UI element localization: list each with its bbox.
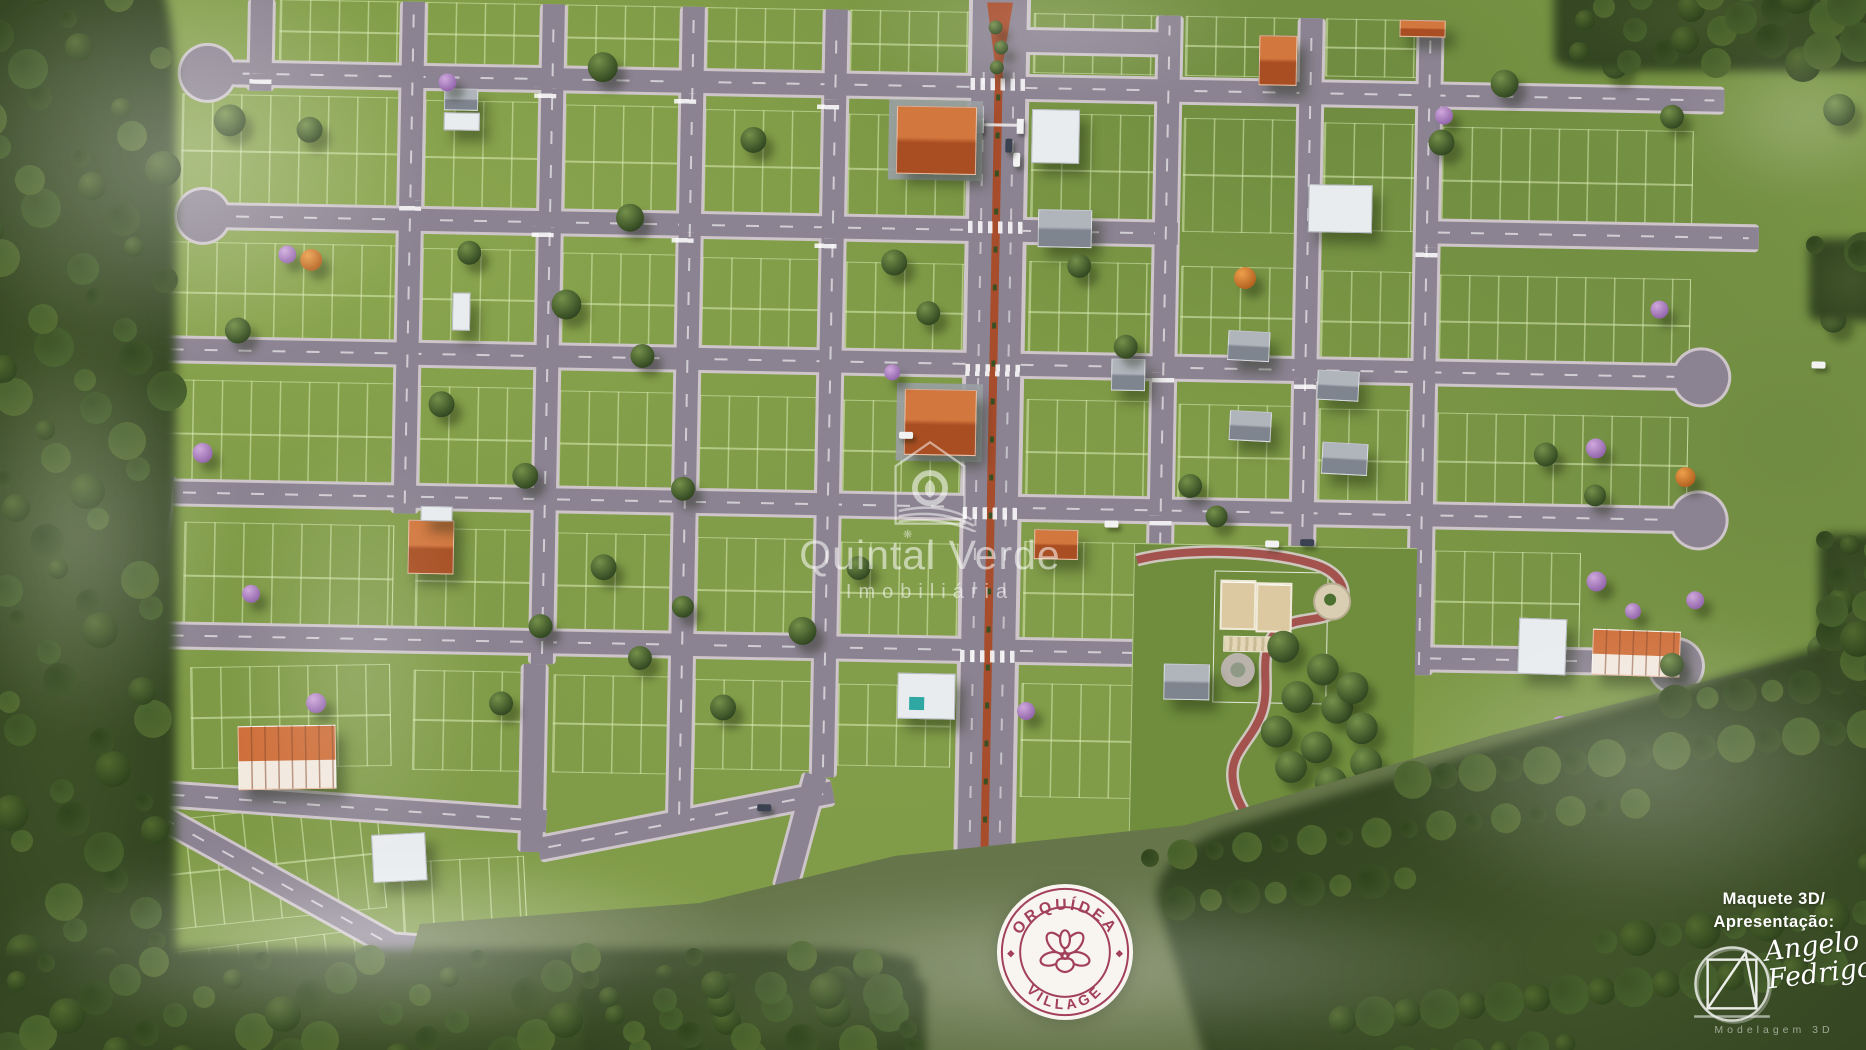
forest-canopy — [1671, 26, 1699, 54]
forest-canopy — [581, 971, 599, 989]
author-signature: Angelo Fedrigo — [1763, 926, 1866, 996]
forest-canopy — [133, 1020, 159, 1046]
credits-subtitle: Modelagem 3D — [1682, 1024, 1866, 1036]
forest-canopy — [4, 714, 36, 746]
forest-canopy — [415, 1026, 441, 1050]
forest-canopy — [117, 121, 147, 151]
forest — [1560, 0, 1866, 65]
forest-canopy — [37, 954, 55, 972]
forest-canopy — [677, 1022, 703, 1048]
forest-canopy — [128, 677, 156, 705]
forest-canopy — [1816, 531, 1834, 549]
forest-canopy — [163, 1003, 187, 1027]
forest-canopy — [121, 561, 159, 599]
forest-canopy — [785, 1024, 819, 1050]
forest — [1815, 245, 1866, 315]
forest-canopy — [85, 288, 103, 306]
forest-canopy — [1569, 42, 1589, 62]
badge-separator-right: ◆ — [1115, 948, 1124, 958]
forest-canopy — [134, 700, 172, 738]
forest-canopy — [30, 524, 64, 558]
forest-canopy — [78, 172, 106, 200]
forest-canopy — [87, 508, 109, 530]
forest-canopy — [653, 988, 677, 1012]
forest-canopy — [295, 979, 329, 1013]
forest-canopy — [7, 971, 27, 991]
forest-canopy — [1725, 2, 1757, 34]
forest-canopy — [1816, 595, 1848, 627]
forest-canopy — [84, 832, 124, 872]
forest-canopy — [80, 392, 112, 424]
forest-canopy — [35, 420, 55, 440]
forest-canopy — [113, 318, 137, 342]
forest-canopy — [141, 816, 169, 844]
forest-canopy — [139, 947, 169, 977]
forest-canopy — [135, 793, 153, 811]
forest-canopy — [905, 1038, 923, 1050]
forest-canopy — [325, 962, 357, 994]
forest-canopy — [701, 971, 729, 999]
forest-canopy — [599, 987, 619, 1007]
forest-canopy — [65, 33, 93, 61]
forest — [0, 0, 170, 1050]
forest-canopy — [95, 751, 131, 787]
forest-canopy — [9, 610, 27, 628]
forest-canopy — [79, 981, 113, 1015]
forest-canopy — [355, 945, 385, 975]
forest-canopy — [147, 371, 187, 411]
forest-canopy — [45, 883, 83, 921]
forest — [590, 980, 920, 1050]
forest-canopy — [56, 802, 90, 836]
forest-canopy — [8, 49, 48, 89]
forest-canopy — [1575, 10, 1595, 30]
forest-canopy — [37, 640, 61, 664]
forest-canopy — [1840, 535, 1860, 555]
orquidea-village-badge: ORQUÍDEA VILLAGE ◆ ◆ — [994, 881, 1136, 1023]
forest-canopy — [253, 952, 271, 970]
forest-canopy — [1828, 565, 1854, 591]
forest-canopy — [124, 237, 144, 257]
forest-canopy — [379, 1001, 403, 1025]
forest-canopy — [511, 977, 545, 1011]
forest-canopy — [139, 596, 163, 620]
forest-canopy — [15, 165, 45, 195]
forest-canopy — [1806, 236, 1824, 254]
forest-canopy — [409, 984, 431, 1006]
badge-separator-left: ◆ — [1006, 948, 1015, 958]
forest-canopy — [48, 559, 68, 579]
forest-canopy — [150, 47, 172, 69]
forest-canopy — [89, 728, 115, 754]
forest-canopy — [731, 1023, 761, 1050]
forest-canopy — [145, 151, 181, 187]
forest-canopy — [109, 964, 141, 996]
forest-canopy — [43, 663, 77, 697]
forest-canopy — [59, 10, 77, 28]
forest-layer — [0, 0, 1866, 1050]
forest-canopy — [1755, 24, 1789, 58]
forest-canopy — [130, 897, 162, 929]
credits-line1: Maquete 3D/ — [1682, 888, 1866, 911]
forest-canopy — [152, 267, 178, 293]
forest-canopy — [755, 972, 787, 1004]
forest-canopy — [445, 1009, 469, 1033]
forest-canopy — [72, 149, 90, 167]
forest-canopy — [50, 779, 74, 803]
forest-canopy — [1623, 18, 1647, 42]
forest-canopy — [41, 443, 71, 473]
forest-canopy — [126, 457, 150, 481]
forest-canopy — [541, 960, 573, 992]
forest-canopy — [1139, 847, 1161, 869]
forest-canopy — [193, 986, 215, 1008]
forest-canopy — [111, 98, 131, 118]
forest-canopy — [63, 918, 87, 942]
forest — [1825, 540, 1866, 690]
forest-canopy — [1701, 48, 1731, 78]
forest-canopy — [108, 422, 146, 460]
forest-canopy — [439, 967, 459, 987]
aerial-masterplan-render: ❋ Quintal Verde Imobiliária ORQUÍDEA VIL… — [0, 0, 1866, 1050]
forest-canopy — [469, 950, 487, 968]
forest-canopy — [74, 369, 96, 391]
forest-canopy — [1803, 32, 1841, 70]
forest-canopy — [223, 969, 243, 989]
forest-canopy — [605, 1005, 625, 1025]
forest-canopy — [106, 202, 140, 236]
forest-canopy — [623, 1021, 645, 1043]
forest-canopy — [76, 589, 102, 615]
forest-canopy — [119, 341, 153, 375]
forest-canopy — [2, 494, 30, 522]
forest-canopy — [685, 948, 703, 966]
forest-canopy — [67, 253, 99, 285]
forest-canopy — [787, 941, 817, 971]
forest-canopy — [11, 830, 33, 852]
forest-canopy — [82, 612, 118, 648]
forest-canopy — [28, 304, 58, 334]
credits-block: Maquete 3D/ Apresentação: Angelo Fedrigo… — [1682, 888, 1866, 934]
forest-canopy — [69, 473, 105, 509]
forest-canopy — [863, 974, 903, 1014]
forest-canopy — [1617, 50, 1641, 74]
forest-canopy — [809, 973, 845, 1009]
forest-canopy — [899, 1020, 917, 1038]
forest-canopy — [571, 943, 601, 973]
